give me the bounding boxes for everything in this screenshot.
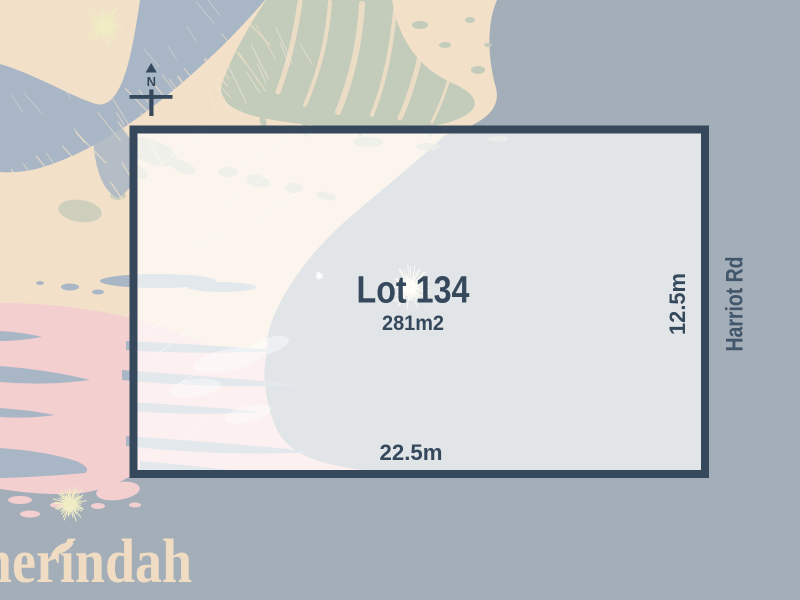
svg-text:281m2: 281m2 [382, 312, 444, 335]
svg-text:Lot 134: Lot 134 [357, 270, 470, 312]
svg-text:12.5m: 12.5m [665, 273, 690, 335]
svg-text:N: N [147, 74, 156, 89]
svg-text:22.5m: 22.5m [380, 440, 443, 465]
svg-text:meríndah: meríndah [0, 528, 192, 596]
svg-text:Harriot Rd: Harriot Rd [722, 257, 749, 352]
